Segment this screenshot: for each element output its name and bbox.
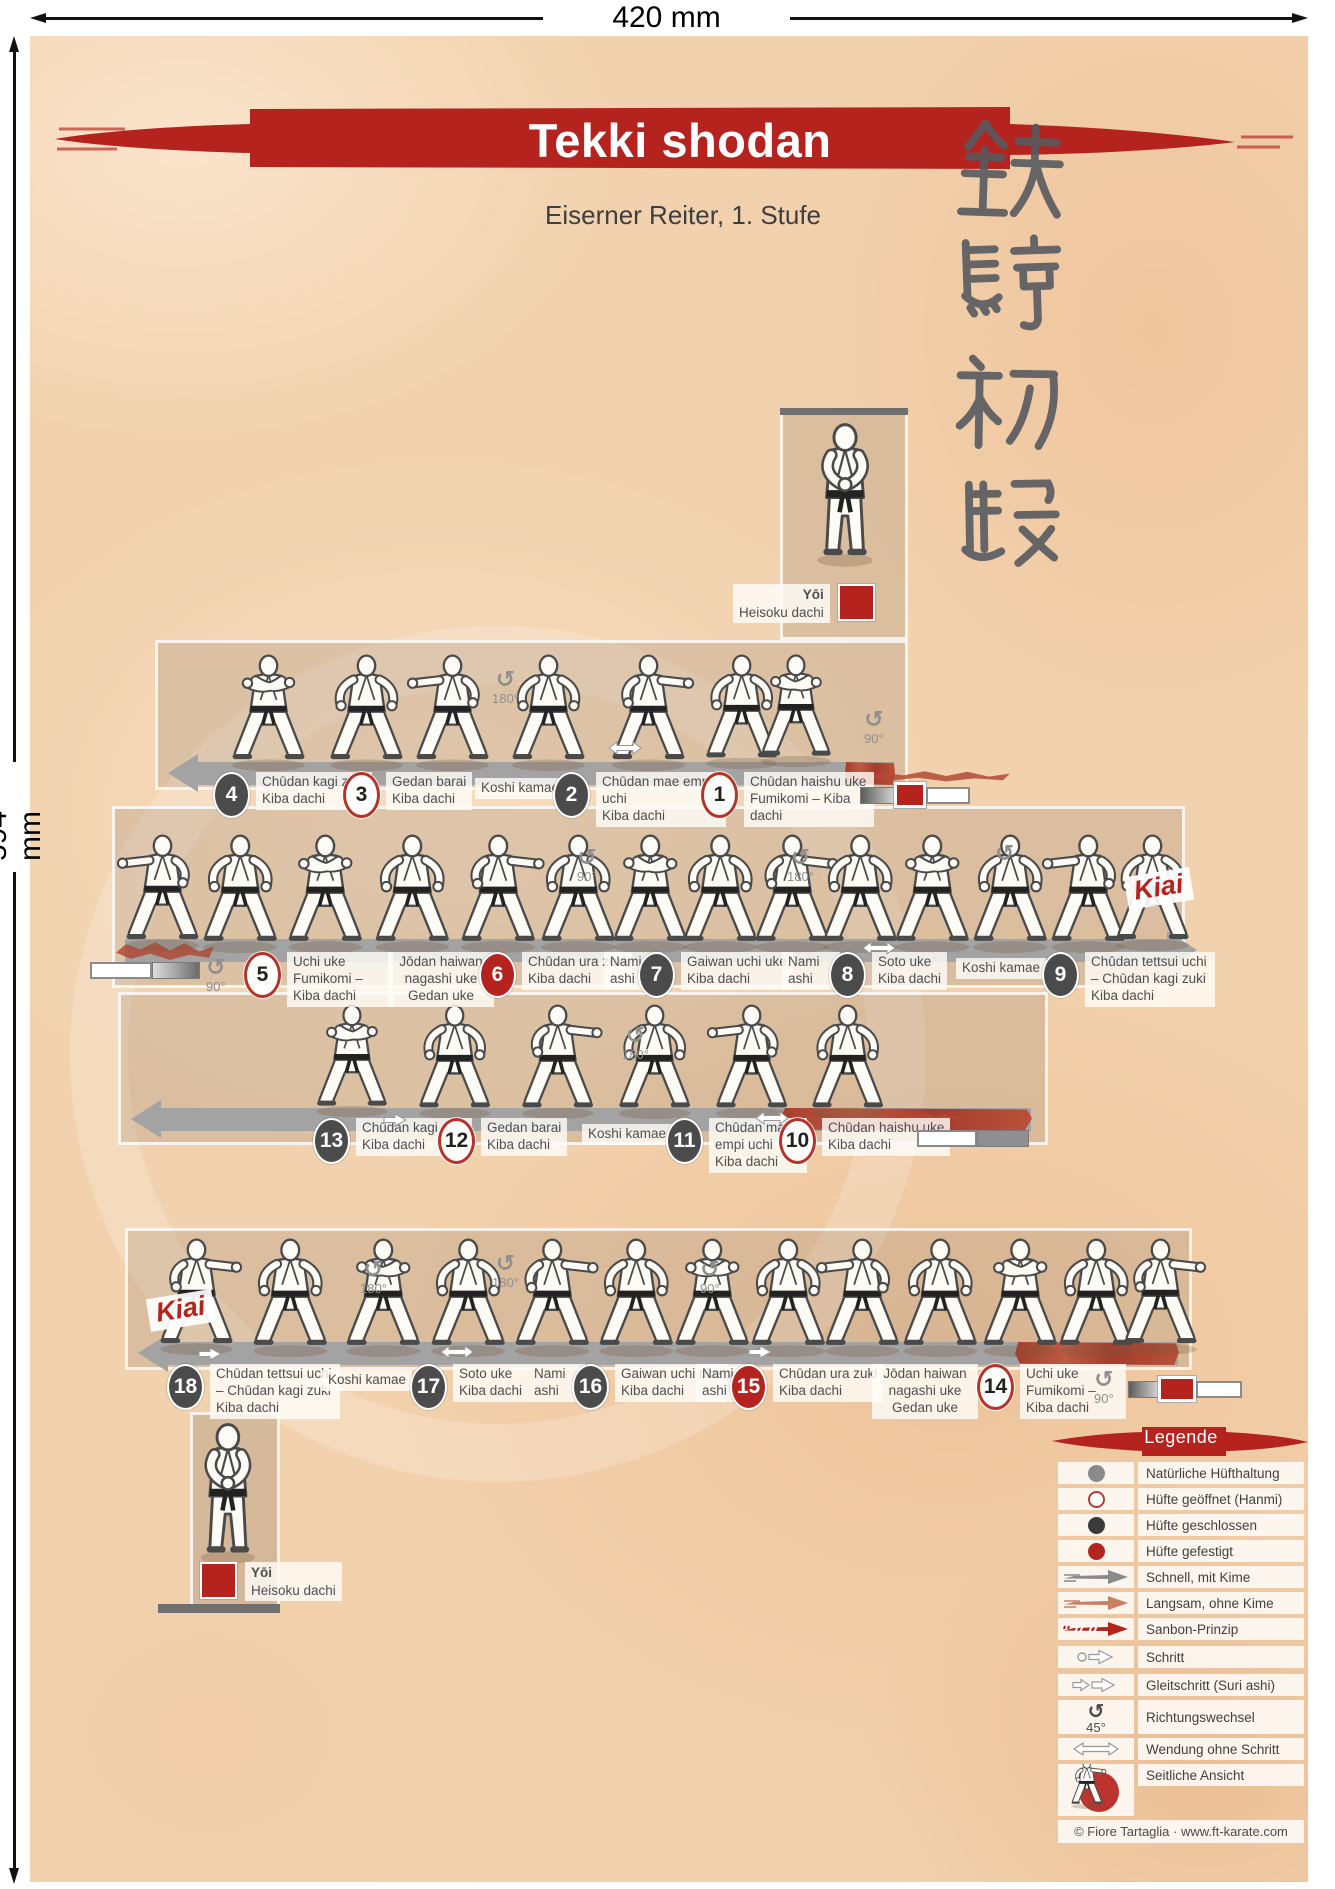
step-arrow-icon — [748, 1344, 772, 1360]
step-number: 2 — [553, 772, 590, 818]
yoi-marker — [838, 584, 875, 621]
legend-row: Gleitschritt (Suri ashi) — [1058, 1674, 1304, 1696]
fast-arrow-icon — [1058, 1566, 1134, 1588]
legend-title: Legende — [1054, 1427, 1308, 1448]
ruler-arrow-down-icon — [9, 1868, 19, 1884]
kanji-tetsu-glyph — [946, 113, 1070, 229]
step-label-jodan-haiwan: Jōdan haiwan nagashi ukeGedan uke — [872, 1364, 978, 1419]
side-view-icon — [1058, 1764, 1134, 1816]
karateka-figure — [170, 1420, 286, 1572]
ruler-arrow-up-icon — [9, 36, 19, 52]
yoi-bottom-panel-bar — [158, 1604, 280, 1613]
turn-no-step-icon — [862, 940, 896, 956]
step-number: 8 — [829, 952, 866, 998]
ruler-arrow-left-icon — [30, 13, 46, 23]
rotate-180-icon: ↺180° — [787, 846, 814, 884]
kata-progress-indicator — [1128, 1376, 1242, 1402]
step-label-1: 1 Chūdan haishu ukeFumikomi – Kiba dachi — [701, 772, 874, 827]
step-number: 5 — [244, 952, 281, 998]
step-number: 7 — [638, 952, 675, 998]
yoi-marker — [200, 1562, 237, 1599]
hip-braced-icon — [1058, 1540, 1134, 1562]
step-arrow-icon — [383, 1112, 407, 1128]
step-number: 14 — [977, 1364, 1014, 1410]
step-label-5: 5 Uchi ukeFumikomi – Kiba dachi — [244, 952, 393, 1007]
legend-row: Schritt — [1058, 1646, 1304, 1668]
step-label-9: 9 Chūdan tettsui uchi – Chūdan kagi zuki… — [1042, 952, 1215, 1007]
hip-open-icon — [1058, 1488, 1134, 1510]
rotate-90-icon: ↺90° — [864, 708, 884, 746]
kata-progress-indicator — [860, 782, 970, 808]
karateka-figure — [193, 832, 288, 956]
slow-arrow-icon — [1058, 1592, 1134, 1614]
hip-closed-icon — [1058, 1514, 1134, 1536]
step-number: 12 — [438, 1118, 475, 1164]
rotate-180-icon: ↺180° — [360, 1258, 387, 1296]
copyright-line: © Fiore Tartaglia · www.ft-karate.com — [1058, 1820, 1304, 1843]
ruler-arrow-right-icon — [1292, 13, 1308, 23]
legend-row: Wendung ohne Schritt — [1058, 1738, 1304, 1760]
step-label-7: 7 Gaiwan uchi ukeKiba dachi — [638, 952, 793, 998]
karateka-figure — [751, 652, 841, 770]
rotate-90-icon: ↺90° — [206, 956, 226, 994]
rotate-180-icon: ↺180° — [492, 1252, 519, 1290]
step-number: 17 — [410, 1364, 447, 1410]
step-label-koshi: Koshi kamae — [475, 778, 565, 799]
karateka-figure — [278, 832, 373, 956]
karateka-figure — [1114, 1236, 1207, 1358]
step-label-18: 18 Chūdan tettsui uchi – Chūdan kagi zuk… — [167, 1364, 340, 1419]
turn-icon: ↺ 45° — [1058, 1700, 1134, 1734]
sanbon-arrow-icon — [1058, 1618, 1134, 1640]
yoi-top-label: YōiHeisoku dachi — [733, 584, 875, 623]
karateka-figure — [307, 1002, 397, 1120]
rotate-180-icon: ↺180° — [492, 668, 519, 706]
slide-step-icon — [1058, 1674, 1134, 1696]
karateka-figure — [512, 1002, 603, 1122]
legend-row: ↺ 45° Richtungswechsel — [1058, 1700, 1304, 1734]
legend-row: Schnell, mit Kime — [1058, 1566, 1304, 1588]
rotate-icon: ↺ — [995, 842, 1014, 866]
rotate-90-icon: ↺90° — [577, 846, 597, 884]
step-number: 18 — [167, 1364, 204, 1410]
step-label-12: 12 Gedan baraiKiba dachi — [438, 1118, 567, 1164]
rotate-90-icon: ↺90° — [700, 1258, 720, 1296]
step-number: 4 — [213, 772, 250, 818]
step-label-koshi: Koshi kamae — [322, 1370, 412, 1391]
step-number: 3 — [343, 772, 380, 818]
step-arrow-icon — [1058, 1646, 1134, 1668]
legend-row: Langsam, ohne Kime — [1058, 1592, 1304, 1614]
yoi-bottom-label: YōiHeisoku dachi — [200, 1562, 342, 1601]
kata-progress-indicator — [917, 1130, 1029, 1147]
step-number: 13 — [313, 1118, 350, 1164]
kata-poster-page: 420 mm 594 mm Tekki shodan Eiserner Reit… — [0, 0, 1335, 1889]
ruler-left-line — [13, 872, 16, 1876]
karateka-figure — [802, 1002, 893, 1122]
hip-natural-icon — [1058, 1462, 1134, 1484]
kanji-ki-glyph — [946, 228, 1070, 344]
legend-row: Seitliche Ansicht — [1058, 1764, 1304, 1786]
rotate-180-icon: ↺180° — [622, 1024, 649, 1062]
kanji-dan-glyph — [947, 469, 1069, 583]
step-label-koshi: Koshi kamae — [956, 958, 1046, 979]
karateka-figure — [243, 1236, 338, 1360]
ruler-top-line — [38, 17, 543, 20]
turn-no-step-icon — [1058, 1738, 1134, 1760]
step-label-3: 3 Gedan baraiKiba dachi — [343, 772, 472, 818]
step-label-8: 8 Soto ukeKiba dachi — [829, 952, 947, 998]
step-number: 16 — [572, 1364, 609, 1410]
karateka-figure — [222, 652, 315, 774]
legend-row: Natürliche Hüfthaltung — [1058, 1462, 1304, 1484]
legend-row: Hüfte geschlossen — [1058, 1514, 1304, 1536]
page-subtitle: Eiserner Reiter, 1. Stufe — [545, 200, 821, 231]
karateka-figure — [336, 1236, 431, 1360]
ruler-top-label: 420 mm — [543, 1, 790, 35]
legend-row: Sanbon-Prinzip — [1058, 1618, 1304, 1640]
step-label-17: 17 Soto ukeKiba dachi — [410, 1364, 528, 1410]
rotate-90-icon: ↺90° — [1094, 1368, 1114, 1406]
step-number: 1 — [701, 772, 738, 818]
karateka-figure — [786, 420, 904, 575]
kanji-sho-glyph — [947, 349, 1069, 463]
kata-progress-indicator — [90, 962, 200, 979]
step-arrow-icon — [198, 1346, 222, 1362]
step-number: 6 — [479, 952, 516, 998]
karateka-figure — [406, 652, 499, 774]
turn-no-step-icon — [608, 740, 642, 756]
karateka-figure — [409, 1002, 500, 1122]
karateka-figure — [365, 832, 460, 956]
page-title: Tekki shodan — [495, 113, 865, 168]
karateka-figure — [505, 1236, 600, 1360]
ruler-left-line — [13, 44, 16, 762]
turn-no-step-icon — [440, 1344, 474, 1360]
step-label-15: 15 Chūdan ura zukiKiba dachi — [730, 1364, 883, 1410]
karateka-figure — [706, 1002, 797, 1122]
karateka-figure — [320, 652, 413, 774]
ruler-left-label: 594 mm — [0, 786, 48, 886]
step-number: 15 — [730, 1364, 767, 1410]
legend-row: Hüfte gefestigt — [1058, 1540, 1304, 1562]
legend-row: Hüfte geöffnet (Hanmi) — [1058, 1488, 1304, 1510]
ruler-top-line — [790, 17, 1300, 20]
turn-no-step-icon — [755, 1110, 789, 1126]
step-number: 11 — [666, 1118, 703, 1164]
yoi-top-panel-bar — [780, 408, 908, 415]
step-label-koshi: Koshi kamae — [582, 1124, 672, 1145]
step-number: 9 — [1042, 952, 1079, 998]
